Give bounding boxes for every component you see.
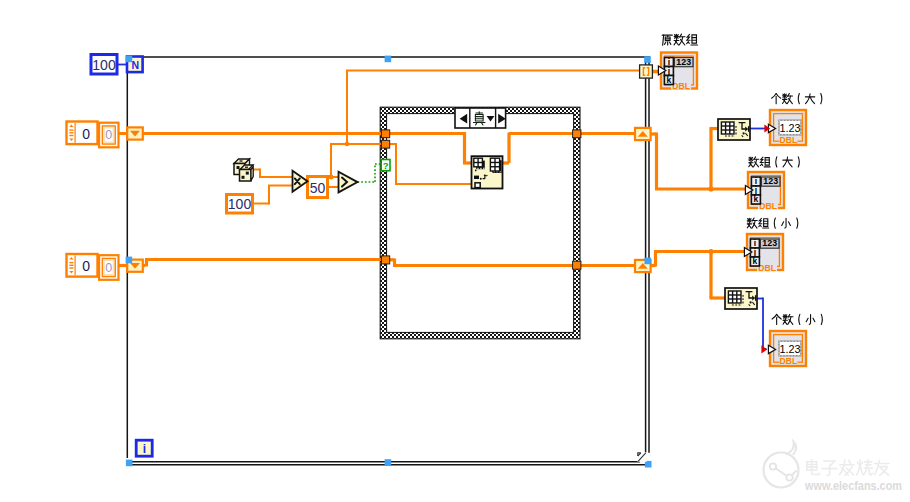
svg-text:1.23: 1.23 — [779, 122, 800, 134]
svg-text:100: 100 — [92, 57, 116, 73]
svg-text:i: i — [143, 442, 146, 456]
svg-text:123: 123 — [763, 176, 778, 186]
svg-text:0: 0 — [105, 261, 112, 275]
svg-text:0: 0 — [82, 126, 90, 142]
svg-text:DBL: DBL — [758, 263, 776, 273]
svg-text:?: ? — [383, 160, 389, 171]
svg-text:k: k — [753, 256, 758, 266]
svg-text:DBL: DBL — [780, 135, 798, 145]
svg-text:123: 123 — [676, 57, 691, 67]
svg-text:0: 0 — [105, 128, 112, 142]
svg-text:50: 50 — [310, 180, 326, 196]
svg-text:100: 100 — [228, 196, 252, 212]
svg-text:k: k — [667, 75, 672, 85]
svg-text:123: 123 — [762, 238, 777, 248]
svg-text:DBL: DBL — [759, 201, 777, 211]
svg-text:k: k — [754, 194, 759, 204]
svg-text:DBL: DBL — [672, 81, 690, 91]
svg-text:N: N — [131, 59, 139, 71]
svg-text:DBL: DBL — [780, 356, 798, 366]
svg-text:0: 0 — [82, 258, 90, 274]
svg-text:www.elecfans.com: www.elecfans.com — [804, 478, 902, 493]
svg-text:1.23: 1.23 — [779, 343, 800, 355]
